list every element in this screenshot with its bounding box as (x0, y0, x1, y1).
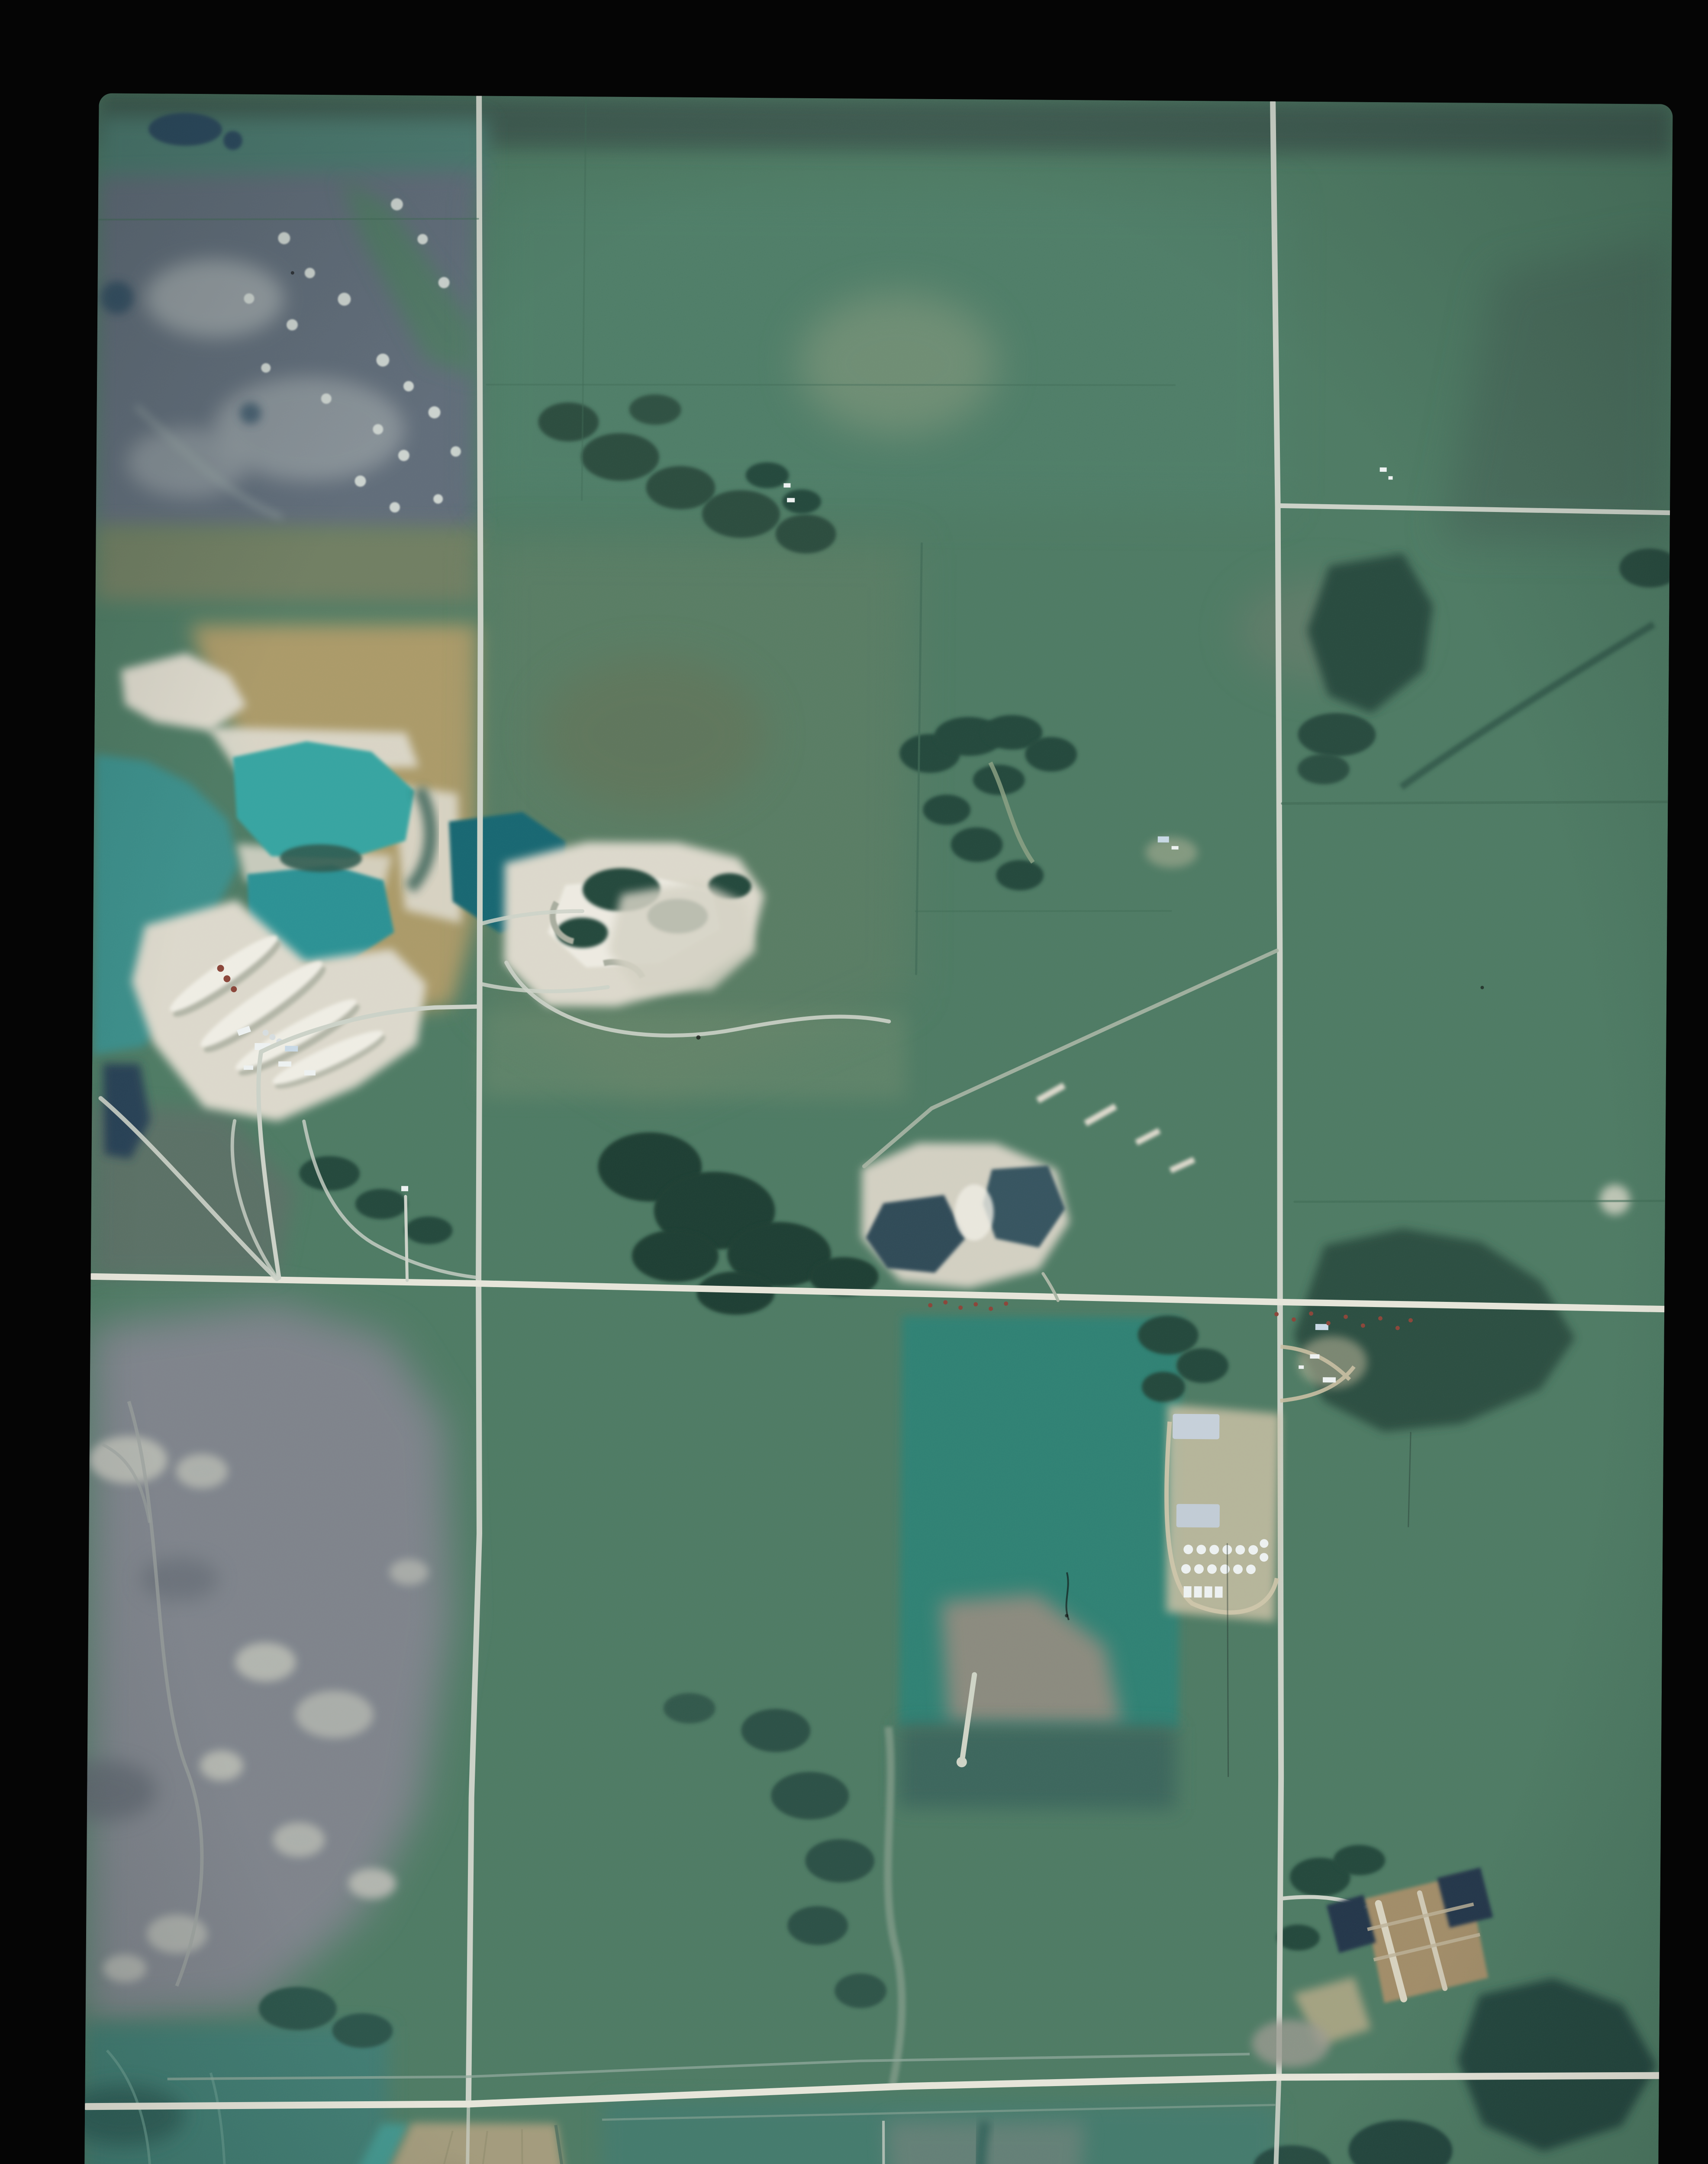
photo-tilt-group (48, 93, 1683, 2164)
vignette (83, 93, 1673, 2164)
aerial-photo (48, 93, 1683, 2164)
slide-frame (0, 0, 1708, 2164)
aerial-photo-svg (0, 0, 1708, 2164)
